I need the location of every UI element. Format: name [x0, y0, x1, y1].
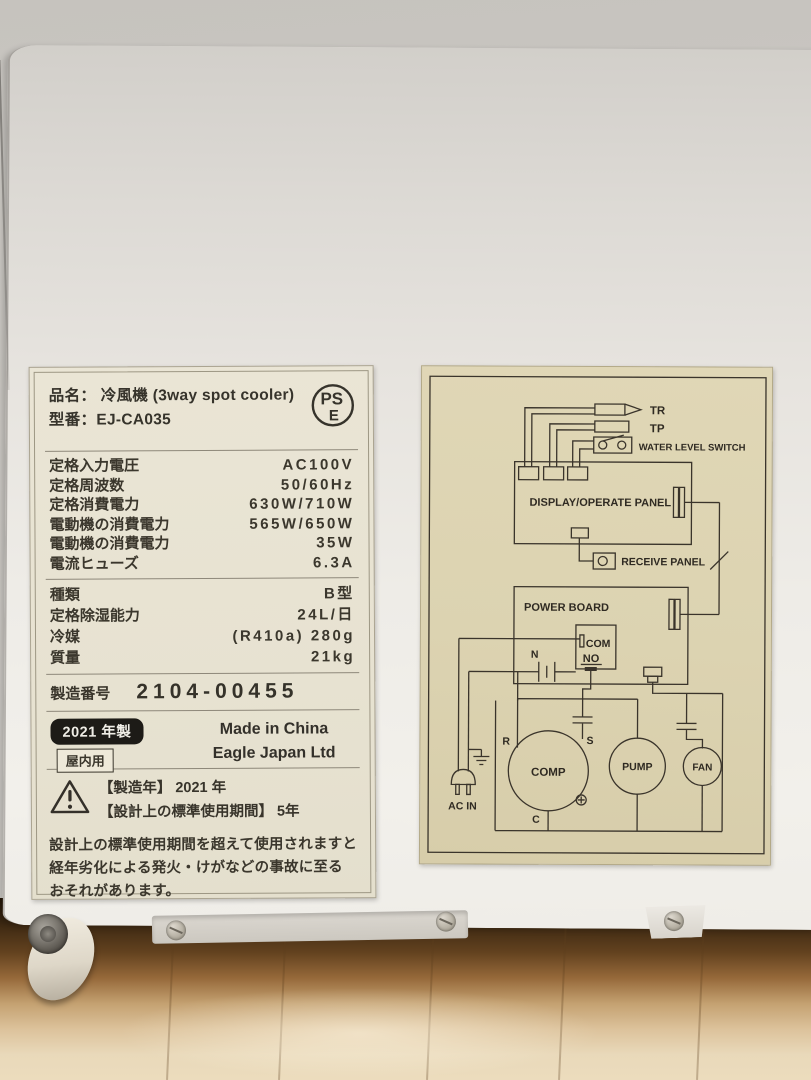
origin-column: Made in China Eagle Japan Ltd — [190, 717, 357, 768]
wiring-diagram: TR TP WATER LEVEL SWITCH DISPLAY/OPERATE… — [420, 366, 772, 865]
pump-text: PUMP — [622, 761, 652, 773]
model-value: EJ-CA035 — [96, 411, 171, 428]
spec-row-label: 電流ヒューズ — [50, 554, 139, 574]
ac-plug-icon — [451, 769, 475, 784]
power-board-text: POWER BOARD — [524, 602, 609, 614]
ratings-section: 定格入力電圧AC100V 定格周波数50/60Hz 定格消費電力630W/710… — [45, 449, 359, 579]
display-panel-text: DISPLAY/OPERATE PANEL — [529, 497, 671, 510]
pse-mark-icon: PS E — [310, 382, 356, 428]
earth-ground-icon — [468, 749, 489, 764]
spec-row-label: 定格入力電圧 — [49, 456, 139, 476]
base-recess-panel — [152, 910, 468, 944]
spec-row: 定格消費電力630W/710W — [49, 494, 354, 515]
base-bracket — [645, 905, 706, 939]
spec-row-value: 24L/日 — [297, 604, 355, 625]
serial-number: 2104-00455 — [136, 679, 298, 704]
wiring-diagram-label: TR TP WATER LEVEL SWITCH DISPLAY/OPERATE… — [419, 365, 773, 866]
panel-bottom-connector — [571, 528, 588, 538]
relay-no-terminal — [585, 667, 597, 671]
n-terminal-text: N — [531, 649, 539, 661]
fan-capacitor-icon — [676, 693, 702, 748]
s-terminal-text: S — [586, 735, 593, 747]
warning-line: 経年劣化による発火・けがなどの事故に至る — [49, 856, 358, 881]
n-connector-icon — [539, 662, 555, 682]
edge-connector — [669, 599, 674, 629]
warning-icon — [49, 777, 91, 817]
warning-line: 設計上の標準使用期間を超えて使用されますと — [49, 833, 358, 858]
live-wire — [458, 638, 580, 772]
mfg-year-line: 【製造年】 2021 年 — [99, 775, 300, 800]
wls-lever — [603, 435, 624, 441]
plug-prong — [467, 784, 471, 794]
caution-section: 【製造年】 2021 年 【設計上の標準使用期間】 5年 — [47, 767, 360, 829]
spec-row: 電動機の消費電力565W/650W — [49, 514, 354, 535]
warning-line: おそれがあります。 — [49, 879, 358, 904]
receive-panel-box — [593, 553, 615, 569]
company-text: Eagle Japan Ltd — [191, 741, 358, 766]
spec-label-frame: 品名： 冷風機 (3way spot cooler) 型番：EJ-CA035 P… — [34, 370, 372, 895]
spec-row-value: 565W/650W — [249, 514, 354, 534]
tr-text: TR — [650, 405, 666, 417]
spec-row-value: B型 — [324, 583, 355, 604]
spec-row: 電動機の消費電力35W — [49, 533, 354, 554]
spec-row-label: 定格消費電力 — [49, 495, 139, 515]
svg-text:PS: PS — [320, 389, 343, 408]
spec-row: 定格除湿能力24L/日 — [50, 604, 355, 627]
wls-float — [599, 441, 607, 449]
serial-label: 製造番号 — [50, 682, 110, 703]
badges-column: 2021 年製 屋内用 — [50, 718, 190, 769]
product-section: 品名： 冷風機 (3way spot cooler) 型番：EJ-CA035 P… — [45, 377, 358, 451]
spec-row-label: 定格周波数 — [49, 476, 124, 496]
spec-row-label: 定格除湿能力 — [50, 605, 140, 626]
receive-eye-icon — [598, 557, 607, 566]
wls-wire — [573, 441, 594, 467]
fan-text: FAN — [692, 762, 712, 773]
panel-connector — [519, 467, 539, 480]
caster-wheel-hub — [28, 914, 68, 954]
relay-no-text: NO — [583, 653, 600, 665]
wls-float — [618, 441, 626, 449]
start-capacitor-icon — [572, 671, 592, 739]
design-life-line: 【設計上の標準使用期間】 5年 — [99, 799, 300, 824]
plug-prong — [456, 784, 460, 794]
tr-wire — [525, 408, 595, 467]
relay-com-text: COM — [586, 638, 611, 650]
spec-row: 定格周波数50/60Hz — [49, 475, 354, 496]
product-name-label: 品名： — [49, 388, 96, 405]
edge-connector — [675, 599, 680, 629]
panel-connector — [544, 467, 564, 480]
caster-wheel — [22, 908, 112, 1008]
warning-paragraph: 設計上の標準使用期間を超えて使用されますと 経年劣化による発火・けがなどの事故に… — [47, 827, 360, 907]
spec-label: 品名： 冷風機 (3way spot cooler) 型番：EJ-CA035 P… — [29, 365, 377, 900]
spec-row-label: 電動機の消費電力 — [49, 534, 169, 554]
spec-row-value: AC100V — [282, 455, 354, 475]
spec-row-value: 6.3A — [313, 553, 355, 573]
spec-row-value: 50/60Hz — [281, 475, 354, 495]
spec-row-label: 電動機の消費電力 — [49, 515, 169, 535]
product-name-value: 冷風機 (3way spot cooler) — [101, 387, 295, 405]
edge-connector — [673, 487, 678, 517]
spec-row-value: 21kg — [311, 646, 355, 667]
model-label: 型番： — [49, 412, 96, 429]
screw-icon — [664, 911, 685, 932]
spec-row-value: 35W — [316, 533, 354, 553]
board-bottom-connector-flange — [648, 676, 658, 682]
spec-row-value: (R410a) 280g — [232, 625, 355, 647]
spec-row-label: 種類 — [50, 585, 80, 606]
svg-text:E: E — [329, 407, 339, 424]
receive-wire — [579, 538, 593, 561]
wls-text: WATER LEVEL SWITCH — [639, 442, 746, 453]
spec-row-label: 質量 — [50, 648, 80, 669]
r-terminal-text: R — [502, 736, 510, 748]
indoor-use-badge: 屋内用 — [57, 748, 114, 772]
spec-row: 種類B型 — [50, 583, 355, 606]
made-in-text: Made in China — [190, 717, 357, 742]
board-bottom-connector — [644, 667, 662, 676]
spec-row: 質量21kg — [50, 646, 355, 669]
spec-row: 定格入力電圧AC100V — [49, 455, 354, 476]
tr-sensor-tip — [625, 404, 641, 415]
ac-in-text: AC IN — [448, 800, 477, 812]
serial-section: 製造番号 2104-00455 — [46, 672, 359, 711]
tr-sensor-icon — [595, 404, 625, 415]
relay-contact-icon — [580, 635, 584, 647]
tp-text: TP — [650, 423, 665, 435]
edge-connector — [679, 487, 684, 517]
comp-text: COMP — [531, 767, 566, 779]
spec-row-label: 冷媒 — [50, 627, 80, 648]
floor-highlight — [120, 988, 600, 1078]
spec-row: 冷媒(R410a) 280g — [50, 625, 355, 648]
origin-section: 2021 年製 屋内用 Made in China Eagle Japan Lt… — [46, 709, 359, 769]
screw-icon — [166, 920, 186, 940]
spec-row-value: 630W/710W — [249, 494, 354, 514]
caution-lines: 【製造年】 2021 年 【設計上の標準使用期間】 5年 — [99, 775, 300, 828]
tp-sensor-icon — [595, 421, 629, 432]
details-section: 種類B型 定格除湿能力24L/日 冷媒(R410a) 280g 質量21kg — [46, 577, 359, 674]
panel-connector — [568, 467, 588, 480]
spec-row: 電流ヒューズ6.3A — [50, 553, 355, 574]
year-badge: 2021 年製 — [50, 718, 143, 744]
screw-icon — [436, 911, 456, 931]
fan-feed-wire — [652, 682, 723, 831]
c-terminal-text: C — [532, 814, 540, 826]
receive-panel-text: RECEIVE PANEL — [621, 556, 705, 568]
